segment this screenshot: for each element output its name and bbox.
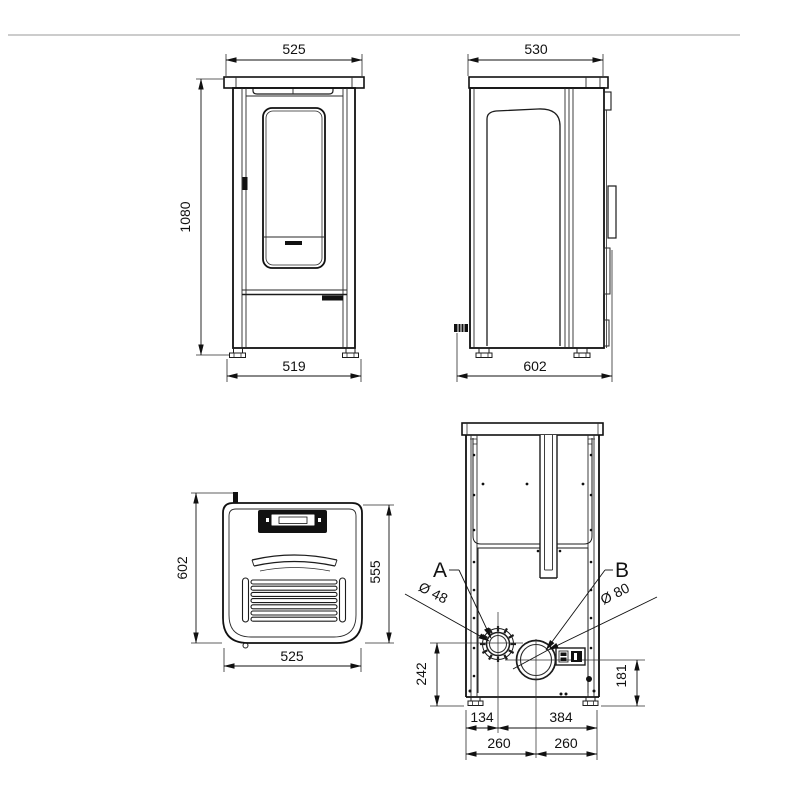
- dim-side-width-top: 530: [524, 41, 548, 57]
- dim-side-depth: 602: [523, 358, 547, 374]
- side-feet: [476, 348, 590, 358]
- scraper-rod: [454, 324, 468, 332]
- side-view-dimensions: 530 602: [457, 41, 612, 382]
- side-rear-details: [604, 92, 616, 348]
- label-b: B: [615, 559, 629, 582]
- dim-rear-height-b: 181: [613, 664, 629, 688]
- dim-front-width-top: 525: [282, 41, 306, 57]
- dim-rear-a-from-left: 134: [470, 709, 494, 725]
- top-view: [223, 492, 362, 648]
- dim-rear-a-to-right: 384: [549, 709, 573, 725]
- upper-back-panel: [473, 438, 592, 544]
- door-latch: [243, 177, 248, 190]
- label-dia-b: Ø 80: [598, 579, 632, 607]
- dim-top-depth-body: 555: [367, 560, 383, 584]
- front-view: [224, 77, 364, 358]
- pedestal-badge: [322, 296, 343, 301]
- top-grille: [243, 578, 346, 622]
- display-panel: [258, 510, 327, 533]
- dim-top-depth-total: 602: [174, 556, 190, 580]
- label-dia-a: Ø 48: [416, 579, 450, 607]
- front-view-dimensions: 525 1080 519: [177, 41, 362, 382]
- drawing-canvas: 525 1080 519: [0, 0, 800, 800]
- side-panel-inset: [487, 109, 560, 346]
- rear-view-leaders: A Ø 48 B Ø 80: [405, 559, 657, 669]
- central-channel: [540, 435, 557, 578]
- front-feet: [230, 348, 359, 358]
- label-a: A: [433, 559, 447, 582]
- brand-mark: [285, 241, 302, 245]
- dim-rear-height-a: 242: [413, 662, 429, 686]
- side-view: [454, 77, 616, 358]
- lid-handle: [252, 555, 337, 571]
- technical-drawing: 525 1080 519: [0, 0, 800, 800]
- scraper-rod-top: [233, 492, 238, 503]
- dim-front-width-bottom: 519: [282, 358, 306, 374]
- dim-front-height: 1080: [177, 201, 193, 232]
- rear-feet: [468, 697, 598, 706]
- power-socket-panel: [556, 648, 585, 665]
- dim-rear-b-from-left: 260: [487, 735, 511, 751]
- dim-top-width: 525: [280, 648, 304, 664]
- lower-back-panel: [478, 548, 588, 693]
- dim-rear-b-to-right: 260: [554, 735, 578, 751]
